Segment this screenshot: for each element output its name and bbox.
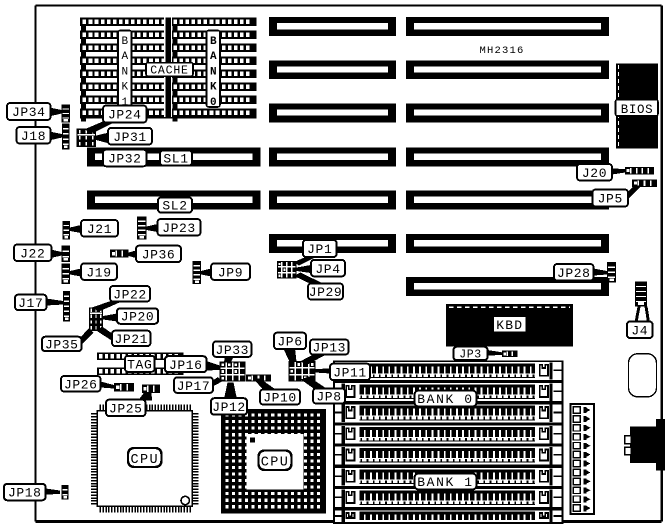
svg-text:JP31: JP31 xyxy=(113,130,147,145)
svg-text:BIOS: BIOS xyxy=(621,103,653,117)
svg-text:JP32: JP32 xyxy=(108,152,142,167)
svg-text:JP6: JP6 xyxy=(277,335,302,350)
svg-text:JP25: JP25 xyxy=(109,402,143,417)
svg-text:SL2: SL2 xyxy=(162,199,187,214)
svg-text:JP11: JP11 xyxy=(333,366,367,381)
svg-text:JP8: JP8 xyxy=(316,390,341,405)
svg-text:K: K xyxy=(121,82,128,94)
svg-text:JP18: JP18 xyxy=(8,486,42,501)
svg-text:J19: J19 xyxy=(86,265,111,280)
svg-text:MH2316: MH2316 xyxy=(479,45,524,57)
svg-text:JP17: JP17 xyxy=(177,379,211,394)
svg-text:JP9: JP9 xyxy=(218,265,243,280)
svg-text:JP5: JP5 xyxy=(598,192,623,207)
svg-text:JP1: JP1 xyxy=(307,242,332,257)
svg-text:N: N xyxy=(210,66,217,78)
svg-text:BANK 1: BANK 1 xyxy=(417,475,473,490)
svg-text:K: K xyxy=(210,82,217,94)
svg-text:SL1: SL1 xyxy=(163,152,188,167)
svg-text:CPU: CPU xyxy=(131,453,160,468)
svg-text:J20: J20 xyxy=(582,166,607,181)
svg-text:J18: J18 xyxy=(21,129,46,144)
svg-text:JP4: JP4 xyxy=(315,262,340,277)
svg-text:J17: J17 xyxy=(18,296,43,311)
svg-text:JP12: JP12 xyxy=(212,400,246,415)
svg-text:N: N xyxy=(121,66,128,78)
svg-text:JP3: JP3 xyxy=(459,349,482,362)
svg-text:CACHE: CACHE xyxy=(150,65,189,78)
svg-text:JP23: JP23 xyxy=(162,221,196,236)
svg-text:JP33: JP33 xyxy=(215,343,249,358)
svg-text:JP36: JP36 xyxy=(142,248,176,263)
svg-text:J22: J22 xyxy=(20,246,45,261)
svg-text:JP26: JP26 xyxy=(64,377,98,392)
svg-text:B: B xyxy=(210,36,217,48)
svg-text:A: A xyxy=(121,51,128,63)
svg-text:JP20: JP20 xyxy=(121,310,155,325)
svg-text:JP10: JP10 xyxy=(263,391,297,406)
svg-text:TAG: TAG xyxy=(127,357,152,372)
svg-text:JP35: JP35 xyxy=(45,338,79,353)
svg-text:KBD: KBD xyxy=(496,318,523,333)
svg-text:JP34: JP34 xyxy=(12,105,46,120)
svg-text:JP13: JP13 xyxy=(312,341,346,356)
svg-text:J21: J21 xyxy=(87,222,112,237)
svg-text:JP22: JP22 xyxy=(113,287,147,302)
svg-text:J4: J4 xyxy=(631,323,648,338)
svg-text:JP24: JP24 xyxy=(108,108,142,123)
svg-text:BANK 0: BANK 0 xyxy=(417,392,473,407)
svg-text:JP21: JP21 xyxy=(114,332,148,347)
svg-text:0: 0 xyxy=(210,97,217,109)
svg-text:JP29: JP29 xyxy=(309,285,343,300)
svg-text:CPU: CPU xyxy=(261,456,290,471)
svg-text:A: A xyxy=(210,51,217,63)
svg-text:B: B xyxy=(121,36,128,48)
svg-text:JP16: JP16 xyxy=(169,358,203,373)
svg-text:JP28: JP28 xyxy=(557,266,591,281)
